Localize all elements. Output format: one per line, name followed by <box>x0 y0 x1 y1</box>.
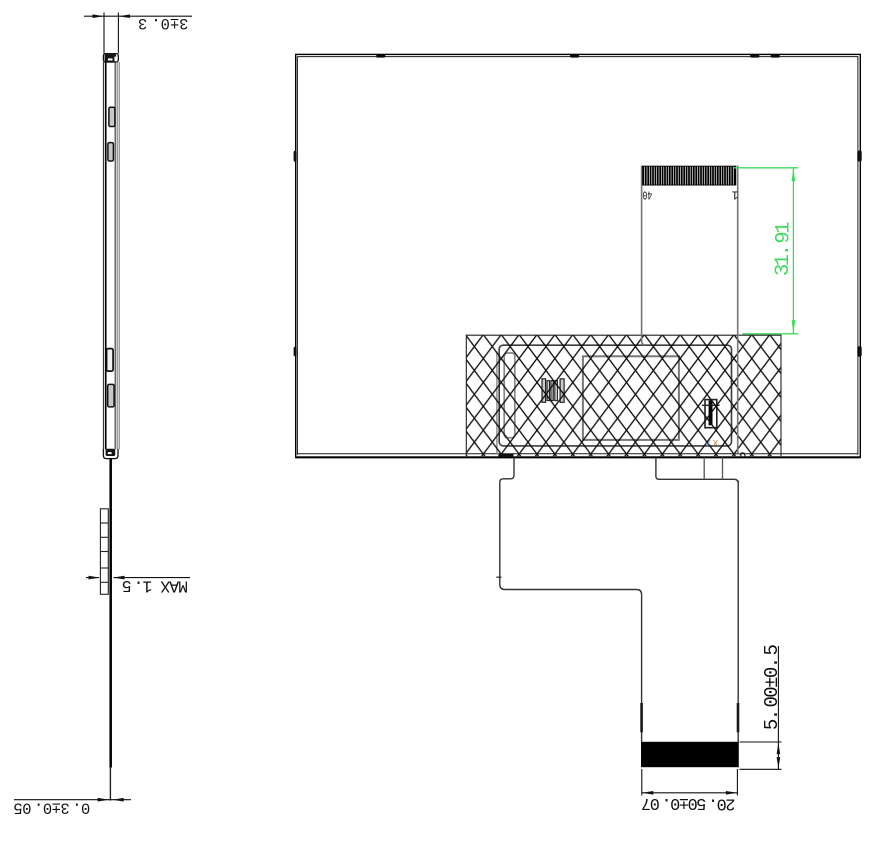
svg-text:0.3±0.05: 0.3±0.05 <box>14 798 91 816</box>
svg-text:3±0.3: 3±0.3 <box>138 14 189 32</box>
svg-text:1: 1 <box>732 187 739 200</box>
svg-text:40: 40 <box>642 188 652 201</box>
svg-text:5.00±0.5: 5.00±0.5 <box>761 644 783 730</box>
svg-text:31.91: 31.91 <box>772 222 795 276</box>
svg-text:MAX 1.5: MAX 1.5 <box>123 577 188 596</box>
svg-text:20.50±0.07: 20.50±0.07 <box>642 793 735 812</box>
